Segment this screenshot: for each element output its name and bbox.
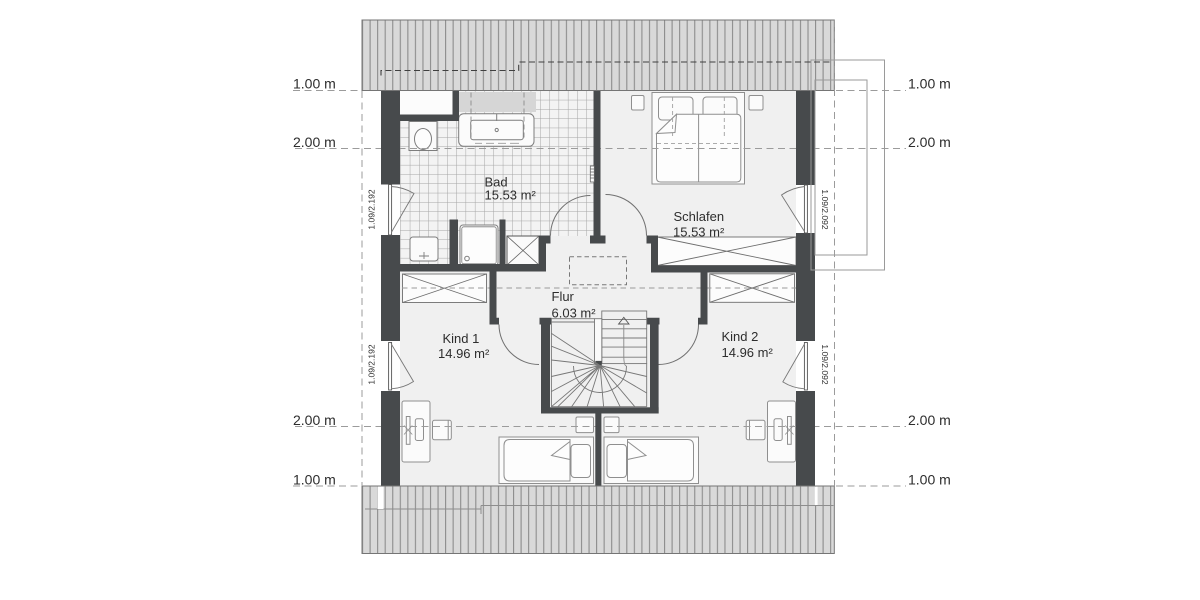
svg-text:15.53 m²: 15.53 m²: [485, 188, 537, 203]
svg-text:1.00 m: 1.00 m: [293, 76, 336, 92]
svg-text:Flur: Flur: [552, 289, 575, 304]
svg-text:Kind 2: Kind 2: [722, 329, 759, 344]
svg-text:1.00 m: 1.00 m: [908, 472, 951, 488]
svg-text:1.09/2.192: 1.09/2.192: [367, 344, 377, 384]
svg-text:15.53 m²: 15.53 m²: [673, 225, 725, 240]
svg-text:1.09/2.192: 1.09/2.192: [367, 189, 377, 229]
svg-text:6.03 m²: 6.03 m²: [552, 306, 597, 321]
svg-text:Schlafen: Schlafen: [674, 209, 725, 224]
svg-text:1.00 m: 1.00 m: [908, 76, 951, 92]
svg-text:2.00 m: 2.00 m: [908, 412, 951, 428]
svg-text:2.00 m: 2.00 m: [908, 134, 951, 150]
svg-text:1.00 m: 1.00 m: [293, 472, 336, 488]
svg-text:2.00 m: 2.00 m: [293, 412, 336, 428]
svg-text:Kind 1: Kind 1: [443, 331, 480, 346]
svg-text:14.96 m²: 14.96 m²: [438, 346, 490, 361]
svg-text:1.09/2.092: 1.09/2.092: [820, 189, 830, 229]
svg-text:14.96 m²: 14.96 m²: [722, 345, 774, 360]
svg-text:1.09/2.092: 1.09/2.092: [820, 344, 830, 384]
svg-text:2.00 m: 2.00 m: [293, 134, 336, 150]
